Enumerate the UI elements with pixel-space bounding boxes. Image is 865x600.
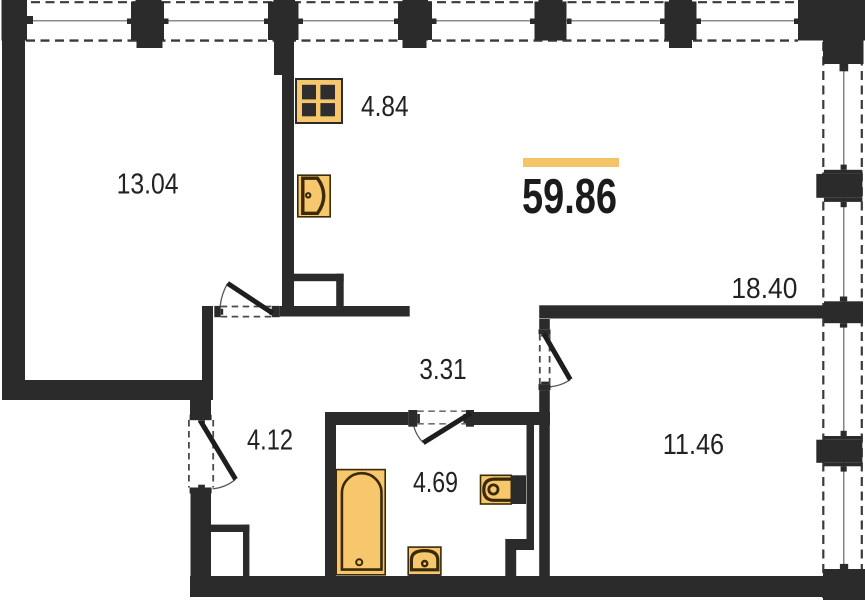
svg-text:4.12: 4.12: [247, 425, 293, 457]
svg-text:13.04: 13.04: [117, 168, 179, 200]
svg-text:3.31: 3.31: [419, 354, 466, 386]
svg-text:59.86: 59.86: [522, 170, 617, 224]
svg-text:11.46: 11.46: [663, 429, 724, 461]
svg-text:4.84: 4.84: [361, 91, 409, 123]
svg-text:4.69: 4.69: [413, 467, 458, 499]
svg-text:18.40: 18.40: [731, 273, 797, 305]
